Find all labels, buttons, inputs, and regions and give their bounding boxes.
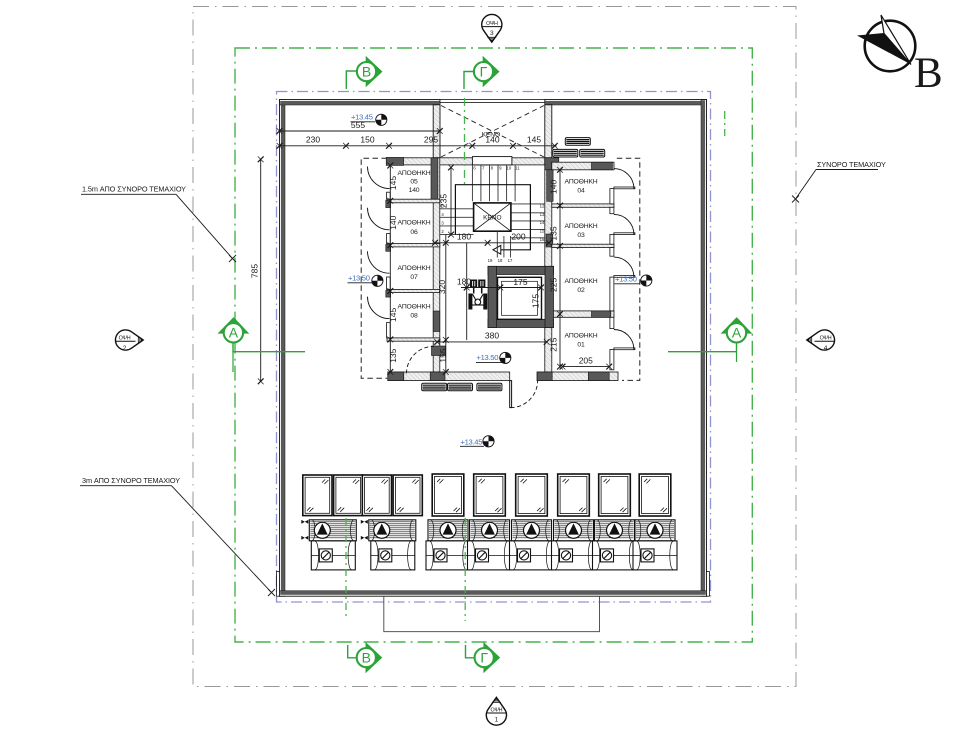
svg-text:10: 10 — [507, 166, 512, 171]
svg-text:230: 230 — [306, 135, 320, 145]
svg-text:12: 12 — [540, 203, 545, 208]
svg-text:04: 04 — [577, 188, 585, 195]
svg-text:07: 07 — [410, 274, 418, 281]
svg-text:16: 16 — [540, 237, 545, 242]
svg-text:140: 140 — [409, 187, 420, 194]
svg-text:11: 11 — [515, 166, 520, 171]
svg-text:ΑΠΟΘΗΚΗ: ΑΠΟΘΗΚΗ — [398, 304, 431, 311]
svg-text:295: 295 — [424, 135, 438, 145]
svg-text:08: 08 — [410, 313, 418, 320]
svg-text:145: 145 — [388, 176, 398, 190]
svg-text:03: 03 — [577, 232, 585, 239]
svg-text:19: 19 — [488, 258, 493, 263]
svg-text:150: 150 — [360, 135, 374, 145]
svg-text:B: B — [914, 50, 943, 97]
svg-text:Β: Β — [362, 650, 371, 666]
svg-text:1: 1 — [495, 717, 499, 724]
svg-text:Γ: Γ — [480, 650, 488, 666]
svg-text:320: 320 — [437, 280, 447, 294]
svg-text:380: 380 — [485, 330, 499, 340]
svg-text:02: 02 — [577, 287, 585, 294]
svg-text:ΣΥΝΟΡΟ ΤΕΜΑΧΙΟΥ: ΣΥΝΟΡΟ ΤΕΜΑΧΙΟΥ — [817, 160, 886, 169]
svg-text:3: 3 — [490, 30, 494, 37]
svg-text:Β: Β — [362, 64, 371, 80]
svg-text:+13.45: +13.45 — [461, 437, 483, 446]
svg-text:ΑΠΟΘΗΚΗ: ΑΠΟΘΗΚΗ — [565, 179, 598, 186]
svg-text:Γ: Γ — [480, 64, 488, 80]
svg-text:+13.45: +13.45 — [351, 113, 373, 122]
svg-text:2: 2 — [123, 345, 127, 352]
svg-text:05: 05 — [410, 178, 418, 185]
svg-text:Α: Α — [229, 325, 239, 341]
svg-text:145: 145 — [527, 135, 541, 145]
svg-text:175: 175 — [513, 277, 527, 287]
svg-text:ΚΕΝΟ: ΚΕΝΟ — [482, 131, 500, 138]
svg-text:180: 180 — [457, 232, 471, 242]
svg-text:15: 15 — [540, 229, 545, 234]
svg-text:3m ΑΠΟ ΣΥΝΟΡΟ ΤΕΜΑΧΙΟΥ: 3m ΑΠΟ ΣΥΝΟΡΟ ΤΕΜΑΧΙΟΥ — [82, 476, 180, 485]
svg-text:ΑΠΟΘΗΚΗ: ΑΠΟΘΗΚΗ — [398, 265, 431, 272]
svg-text:145: 145 — [388, 308, 398, 322]
svg-text:ΑΠΟΘΗΚΗ: ΑΠΟΘΗΚΗ — [565, 333, 598, 340]
svg-text:215: 215 — [548, 337, 558, 351]
svg-text:14: 14 — [540, 220, 545, 225]
svg-text:ΑΠΟΘΗΚΗ: ΑΠΟΘΗΚΗ — [398, 170, 431, 177]
svg-text:175: 175 — [531, 294, 541, 308]
svg-text:155: 155 — [438, 348, 448, 362]
svg-text:180: 180 — [457, 276, 471, 286]
svg-text:135: 135 — [388, 348, 398, 362]
svg-text:135: 135 — [548, 226, 558, 240]
svg-text:+13.50: +13.50 — [615, 275, 637, 284]
svg-text:ΟΨΗ: ΟΨΗ — [486, 21, 498, 27]
svg-text:Α: Α — [732, 325, 742, 341]
svg-text:4: 4 — [824, 345, 828, 352]
svg-text:+13.50: +13.50 — [348, 274, 370, 283]
svg-text:235: 235 — [439, 194, 449, 208]
svg-text:140: 140 — [548, 180, 558, 194]
svg-text:ΟΨΗ: ΟΨΗ — [491, 707, 503, 713]
svg-text:ΚΕΝΟ: ΚΕΝΟ — [483, 214, 501, 221]
svg-text:ΑΠΟΘΗΚΗ: ΑΠΟΘΗΚΗ — [565, 278, 598, 285]
svg-text:18: 18 — [498, 258, 503, 263]
svg-text:785: 785 — [250, 264, 260, 278]
svg-text:13: 13 — [540, 212, 545, 217]
svg-text:+13.50: +13.50 — [477, 353, 499, 362]
svg-text:1.5m ΑΠΟ ΣΥΝΟΡΟ ΤΕΜΑΧΙΟΥ: 1.5m ΑΠΟ ΣΥΝΟΡΟ ΤΕΜΑΧΙΟΥ — [82, 185, 186, 194]
svg-text:17: 17 — [508, 258, 513, 263]
svg-text:205: 205 — [579, 355, 593, 365]
svg-text:140: 140 — [388, 215, 398, 229]
svg-text:ΑΠΟΘΗΚΗ: ΑΠΟΘΗΚΗ — [565, 223, 598, 230]
svg-text:ΟΨΗ: ΟΨΗ — [119, 336, 131, 342]
svg-text:ΟΨΗ: ΟΨΗ — [820, 336, 832, 342]
svg-text:ΑΠΟΘΗΚΗ: ΑΠΟΘΗΚΗ — [398, 220, 431, 227]
svg-text:225: 225 — [548, 278, 558, 292]
svg-text:01: 01 — [577, 342, 585, 349]
svg-text:200: 200 — [511, 232, 525, 242]
svg-text:06: 06 — [410, 229, 418, 236]
